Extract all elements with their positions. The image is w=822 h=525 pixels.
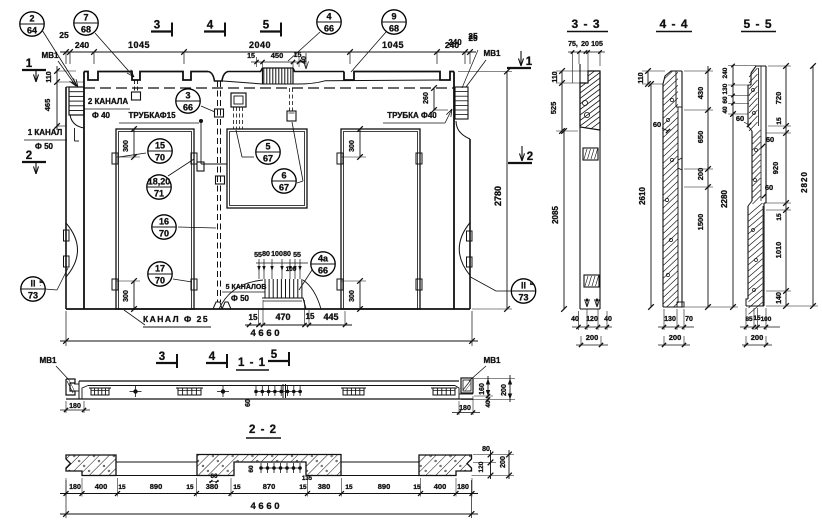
- svg-text:70: 70: [155, 276, 165, 286]
- svg-text:3: 3: [159, 351, 165, 363]
- svg-text:180: 180: [69, 484, 81, 491]
- svg-text:15: 15: [776, 213, 783, 221]
- svg-text:3: 3: [185, 91, 190, 101]
- svg-text:2820: 2820: [800, 171, 809, 193]
- svg-text:1 КАНАЛ: 1 КАНАЛ: [28, 128, 63, 137]
- svg-text:1 - 1: 1 - 1: [238, 357, 266, 369]
- svg-text:180: 180: [69, 403, 81, 410]
- svg-text:300: 300: [349, 140, 356, 152]
- svg-text:40: 40: [485, 400, 492, 408]
- svg-text:1500: 1500: [696, 214, 705, 231]
- svg-text:МВ1: МВ1: [484, 49, 501, 58]
- svg-text:300: 300: [349, 290, 356, 302]
- svg-text:15: 15: [413, 484, 421, 491]
- svg-text:380: 380: [206, 482, 219, 491]
- svg-text:300: 300: [123, 140, 130, 152]
- svg-text:260: 260: [423, 92, 430, 104]
- svg-text:60: 60: [653, 120, 661, 129]
- svg-text:2780: 2780: [493, 186, 503, 206]
- svg-text:465: 465: [43, 99, 52, 112]
- svg-text:1: 1: [26, 58, 33, 70]
- svg-text:6: 6: [281, 171, 286, 181]
- svg-text:180: 180: [457, 484, 469, 491]
- svg-text:140: 140: [776, 292, 783, 304]
- svg-text:15: 15: [186, 484, 194, 491]
- svg-text:7: 7: [83, 13, 88, 23]
- svg-text:Ф 50: Ф 50: [231, 294, 250, 303]
- svg-text:890: 890: [378, 482, 391, 491]
- svg-text:60: 60: [765, 183, 773, 192]
- svg-text:890: 890: [150, 482, 163, 491]
- svg-text:80: 80: [482, 446, 490, 453]
- svg-text:2: 2: [26, 150, 32, 162]
- svg-text:60: 60: [722, 96, 729, 104]
- svg-text:80: 80: [283, 251, 291, 258]
- svg-text:130: 130: [722, 83, 729, 94]
- svg-text:5 - 5: 5 - 5: [743, 17, 772, 31]
- svg-text:64: 64: [27, 26, 37, 36]
- svg-text:720: 720: [774, 92, 783, 105]
- svg-text:100: 100: [286, 266, 297, 273]
- svg-text:5: 5: [265, 142, 270, 152]
- svg-text:380: 380: [318, 482, 331, 491]
- svg-text:68: 68: [81, 25, 91, 35]
- svg-text:5: 5: [271, 349, 278, 361]
- svg-text:130: 130: [664, 316, 676, 323]
- svg-text:4 6 6 0: 4 6 6 0: [250, 501, 279, 512]
- svg-text:70: 70: [685, 316, 693, 323]
- svg-text:66: 66: [324, 24, 334, 34]
- svg-text:470: 470: [275, 312, 290, 322]
- svg-text:15: 15: [118, 484, 126, 491]
- svg-text:2: 2: [527, 151, 533, 163]
- svg-text:15: 15: [776, 117, 783, 125]
- svg-text:МВ1: МВ1: [40, 356, 57, 365]
- svg-text:Ф 40: Ф 40: [92, 111, 111, 120]
- svg-text:4: 4: [207, 20, 214, 32]
- svg-text:80: 80: [262, 251, 270, 258]
- svg-text:200: 200: [586, 333, 599, 342]
- svg-text:70: 70: [155, 153, 165, 163]
- svg-text:15: 15: [233, 484, 241, 491]
- svg-text:445: 445: [323, 312, 338, 322]
- svg-text:66: 66: [318, 266, 328, 276]
- svg-text:60: 60: [210, 473, 218, 480]
- svg-text:200: 200: [501, 384, 508, 396]
- svg-text:II: II: [521, 281, 526, 291]
- svg-text:870: 870: [263, 482, 276, 491]
- svg-text:20: 20: [581, 41, 589, 48]
- svg-text:650: 650: [696, 131, 705, 144]
- svg-text:160: 160: [479, 383, 486, 395]
- svg-text:16: 16: [159, 217, 169, 227]
- svg-text:240: 240: [448, 38, 462, 47]
- svg-text:40: 40: [301, 56, 308, 64]
- svg-text:15: 15: [247, 53, 255, 60]
- svg-text:40: 40: [571, 316, 579, 323]
- svg-text:450: 450: [271, 51, 284, 60]
- svg-text:105: 105: [591, 41, 603, 48]
- svg-text:2 КАНАЛА: 2 КАНАЛА: [88, 97, 129, 106]
- svg-text:60: 60: [736, 114, 744, 123]
- svg-text:66: 66: [183, 103, 193, 113]
- svg-text:4 - 4: 4 - 4: [659, 17, 688, 31]
- svg-text:40: 40: [604, 316, 612, 323]
- svg-text:2 - 2: 2 - 2: [249, 424, 277, 436]
- svg-text:85: 85: [745, 316, 753, 323]
- svg-text:67: 67: [279, 183, 289, 193]
- svg-text:ТРУБКА Ф40: ТРУБКА Ф40: [387, 111, 437, 120]
- svg-text:60: 60: [248, 465, 255, 473]
- svg-text:920: 920: [771, 162, 780, 175]
- svg-text:9: 9: [391, 12, 396, 22]
- svg-text:18,20: 18,20: [148, 177, 171, 187]
- svg-text:2610: 2610: [638, 187, 647, 205]
- svg-text:55: 55: [293, 252, 301, 259]
- svg-text:1010: 1010: [774, 242, 783, 259]
- svg-text:2085: 2085: [551, 206, 560, 224]
- svg-text:МВ1: МВ1: [484, 356, 501, 365]
- svg-text:2280: 2280: [720, 190, 729, 208]
- svg-text:67: 67: [263, 154, 273, 164]
- svg-text:25: 25: [469, 34, 478, 43]
- svg-text:240: 240: [722, 67, 729, 78]
- svg-text:120: 120: [586, 316, 598, 323]
- svg-text:5 КАНАЛОВ: 5 КАНАЛОВ: [226, 284, 267, 291]
- svg-text:4а: 4а: [318, 254, 329, 264]
- svg-text:Ф 50: Ф 50: [35, 142, 54, 151]
- svg-text:15: 15: [306, 312, 315, 321]
- svg-text:110: 110: [46, 71, 53, 82]
- svg-text:200: 200: [696, 168, 705, 181]
- svg-text:120: 120: [478, 461, 485, 472]
- svg-text:3 - 3: 3 - 3: [571, 17, 600, 31]
- svg-text:430: 430: [696, 87, 705, 100]
- svg-text:180: 180: [459, 405, 471, 412]
- svg-text:300: 300: [123, 290, 130, 302]
- svg-text:КАНАЛ Ф 25: КАНАЛ Ф 25: [143, 314, 209, 324]
- svg-text:15: 15: [299, 484, 307, 491]
- svg-text:15: 15: [345, 484, 353, 491]
- svg-text:60: 60: [245, 399, 252, 407]
- svg-text:1: 1: [526, 56, 533, 68]
- svg-text:110: 110: [552, 71, 559, 82]
- svg-text:200: 200: [500, 456, 507, 468]
- svg-text:25: 25: [59, 30, 69, 40]
- svg-text:71: 71: [154, 189, 164, 199]
- svg-text:240: 240: [75, 40, 89, 50]
- svg-text:525: 525: [549, 102, 558, 115]
- svg-text:400: 400: [434, 482, 447, 491]
- svg-text:2: 2: [29, 14, 34, 24]
- svg-text:55: 55: [254, 252, 262, 259]
- svg-text:15: 15: [155, 141, 165, 151]
- svg-text:17: 17: [155, 264, 165, 274]
- svg-text:5: 5: [263, 20, 270, 32]
- svg-text:2040: 2040: [249, 40, 271, 50]
- svg-text:60: 60: [766, 135, 774, 144]
- svg-text:15: 15: [249, 313, 258, 322]
- svg-text:4: 4: [209, 351, 216, 363]
- svg-text:ТРУБКАФ15: ТРУБКАФ15: [128, 111, 176, 120]
- svg-text:4 6 6 0: 4 6 6 0: [250, 328, 279, 339]
- svg-text:70: 70: [159, 229, 169, 239]
- svg-text:200: 200: [751, 333, 764, 342]
- svg-text:400: 400: [95, 482, 108, 491]
- svg-text:135: 135: [302, 476, 313, 482]
- svg-text:1045: 1045: [128, 40, 150, 50]
- svg-text:110: 110: [638, 72, 645, 83]
- svg-text:3: 3: [154, 20, 160, 32]
- svg-text:II: II: [30, 279, 35, 289]
- svg-text:40: 40: [722, 106, 729, 114]
- svg-text:73: 73: [518, 293, 528, 303]
- svg-text:100: 100: [271, 251, 283, 258]
- svg-text:68: 68: [389, 24, 399, 34]
- svg-text:75,: 75,: [568, 41, 578, 48]
- svg-text:73: 73: [28, 291, 38, 301]
- svg-text:1045: 1045: [382, 40, 404, 50]
- svg-text:200: 200: [669, 333, 682, 342]
- svg-text:4: 4: [326, 12, 331, 22]
